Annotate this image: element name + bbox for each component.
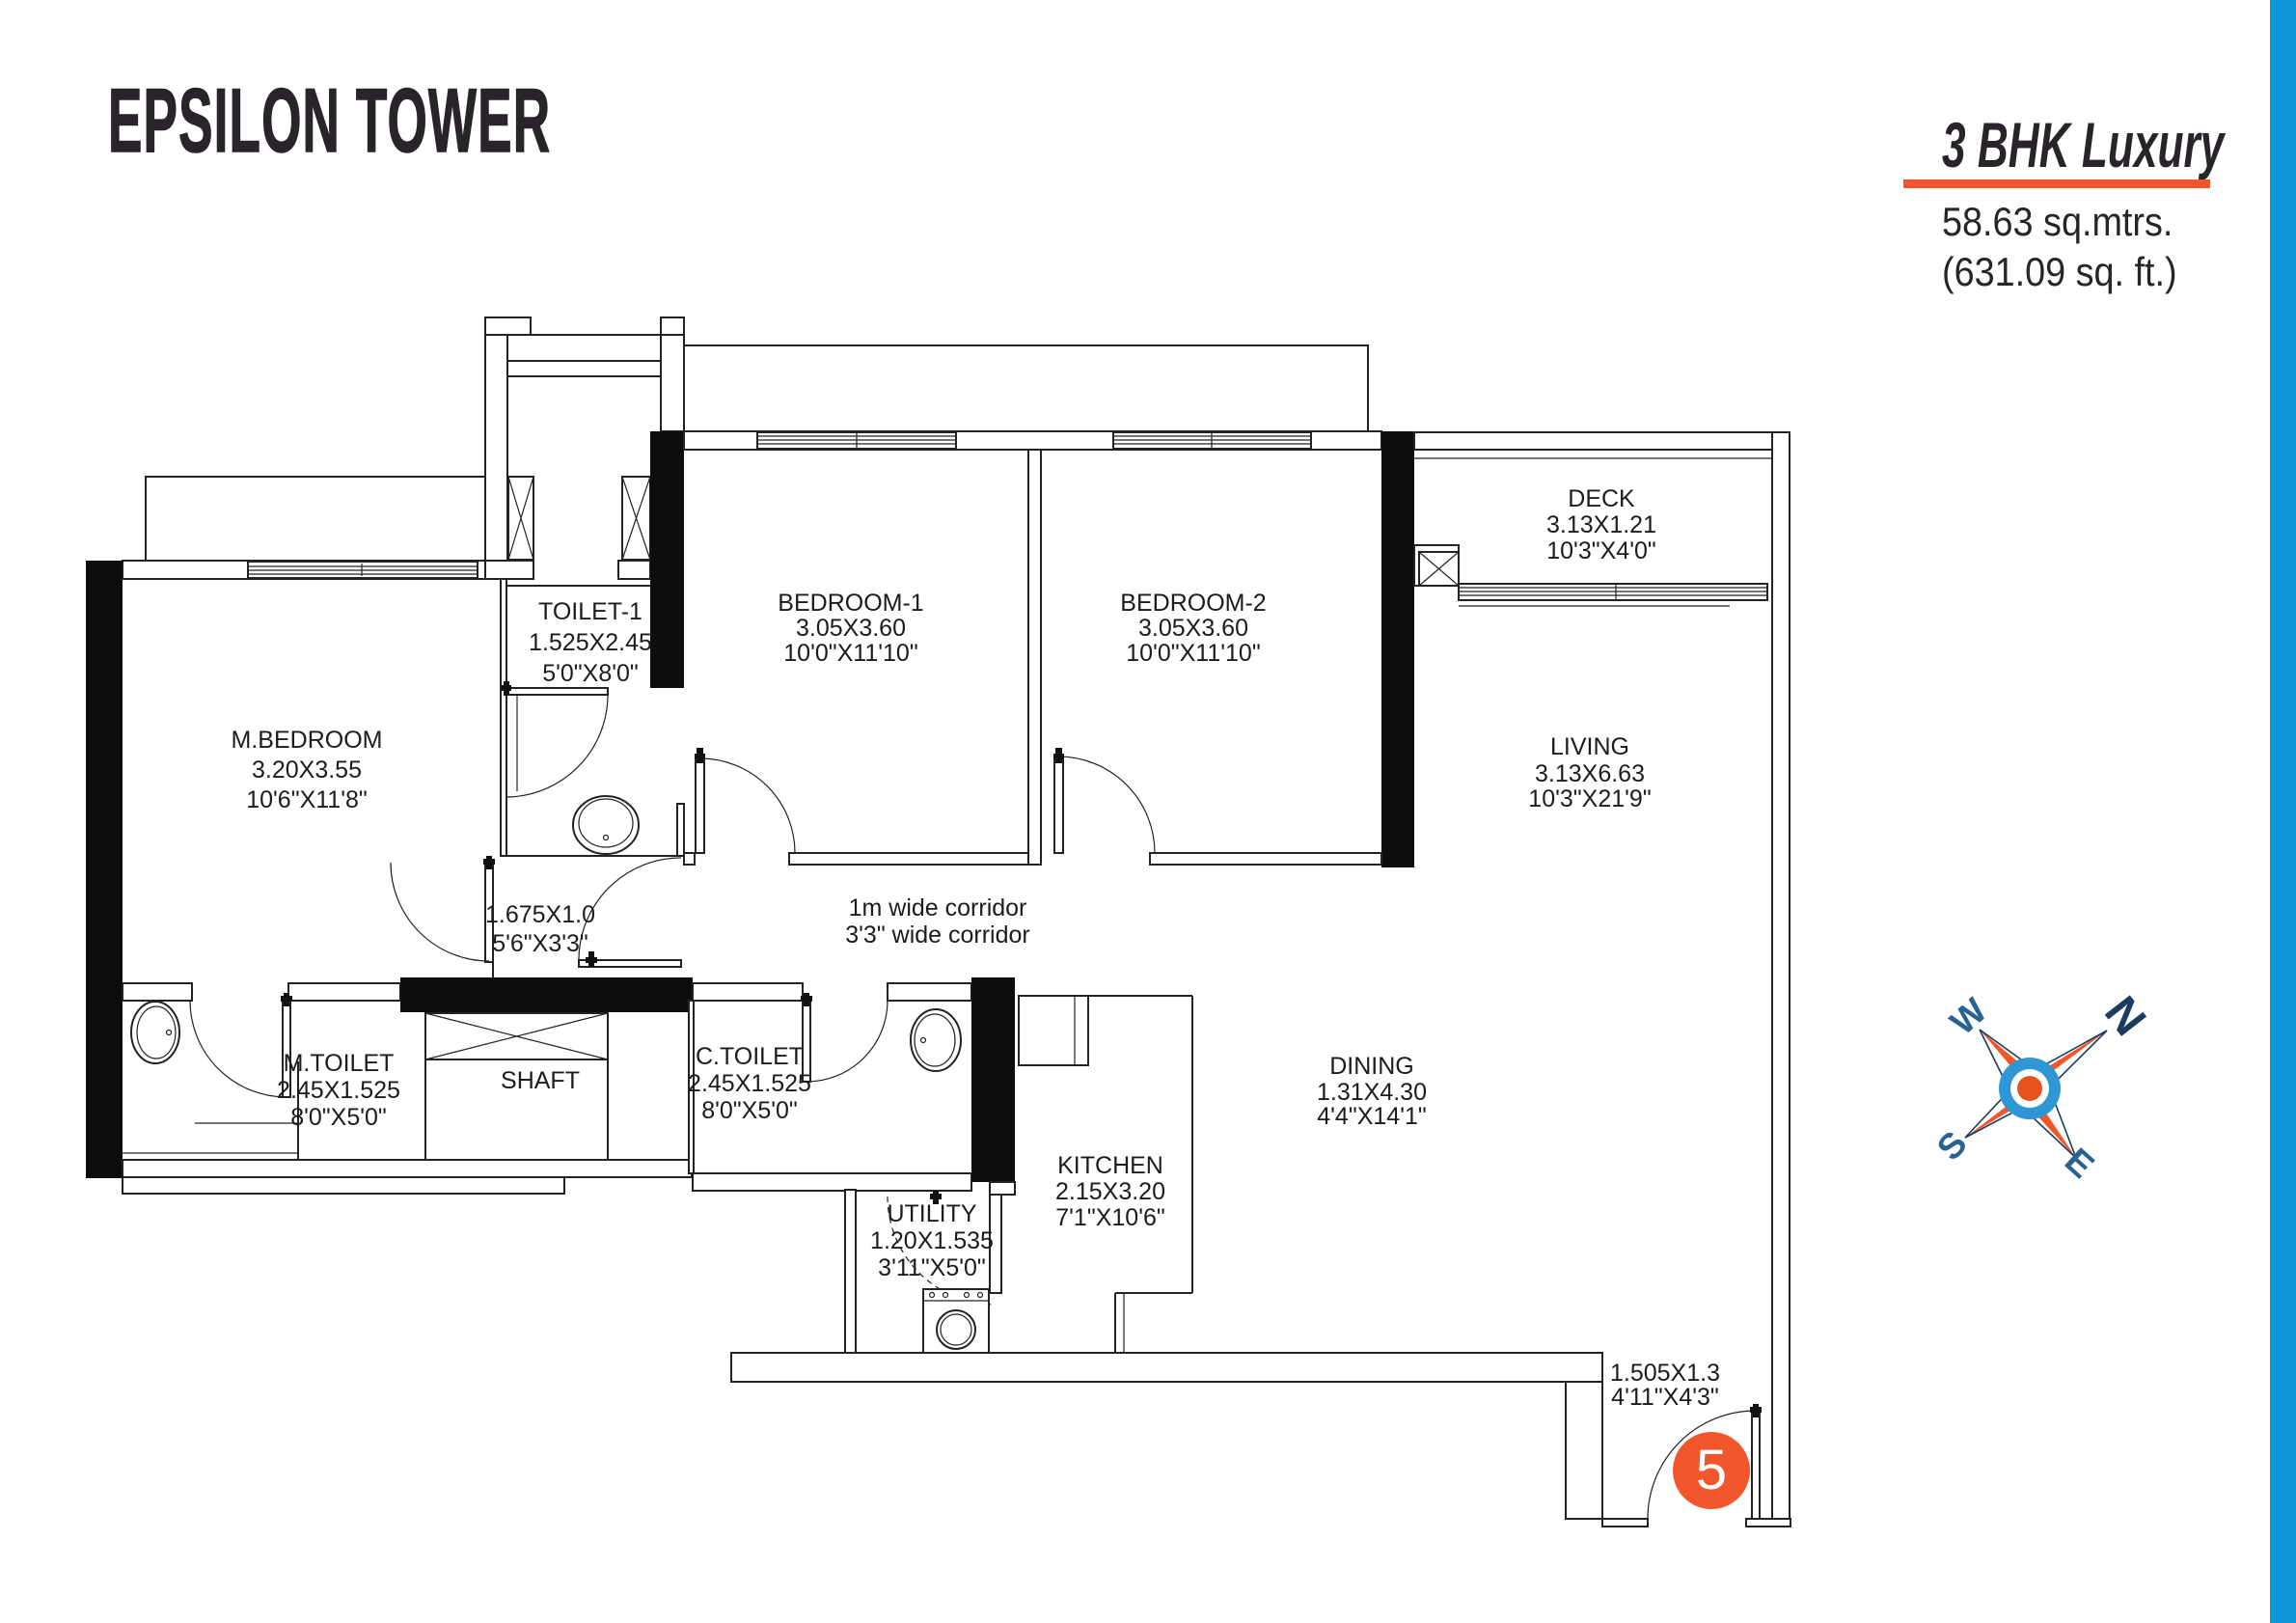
svg-text:10'6"X11'8": 10'6"X11'8"	[246, 786, 368, 813]
svg-text:1.20X1.535: 1.20X1.535	[870, 1227, 994, 1254]
svg-text:EPSILON TOWER: EPSILON TOWER	[108, 70, 551, 172]
svg-text:1.31X4.30: 1.31X4.30	[1317, 1079, 1427, 1106]
svg-text:3.13X1.21: 3.13X1.21	[1546, 511, 1656, 538]
svg-text:4'4"X14'1": 4'4"X14'1"	[1317, 1103, 1427, 1130]
svg-text:1m wide corridor: 1m wide corridor	[849, 894, 1027, 922]
svg-text:7'1"X10'6": 7'1"X10'6"	[1055, 1204, 1165, 1231]
svg-text:2.15X3.20: 2.15X3.20	[1055, 1178, 1165, 1205]
svg-text:3.05X3.60: 3.05X3.60	[1138, 615, 1248, 642]
svg-text:2.45X1.525: 2.45X1.525	[277, 1077, 400, 1104]
svg-text:C.TOILET: C.TOILET	[696, 1043, 804, 1070]
svg-text:3.13X6.63: 3.13X6.63	[1535, 760, 1645, 787]
svg-text:4'11"X4'3": 4'11"X4'3"	[1611, 1384, 1719, 1411]
svg-text:LIVING: LIVING	[1550, 733, 1629, 760]
svg-text:3'3" wide corridor: 3'3" wide corridor	[845, 922, 1030, 949]
svg-text:5'0"X8'0": 5'0"X8'0"	[542, 660, 639, 687]
svg-text:DINING: DINING	[1329, 1053, 1414, 1080]
svg-text:10'0"X11'10": 10'0"X11'10"	[783, 640, 917, 667]
svg-text:UTILITY: UTILITY	[887, 1200, 976, 1227]
svg-text:DECK: DECK	[1568, 485, 1635, 512]
svg-text:10'3"X4'0": 10'3"X4'0"	[1546, 537, 1656, 564]
svg-text:M.BEDROOM: M.BEDROOM	[232, 727, 383, 754]
svg-text:8'0"X5'0": 8'0"X5'0"	[701, 1097, 798, 1124]
svg-text:10'0"X11'10": 10'0"X11'10"	[1126, 640, 1260, 667]
svg-text:1.505X1.3: 1.505X1.3	[1610, 1360, 1720, 1387]
svg-text:5'6"X3'3": 5'6"X3'3"	[492, 930, 588, 957]
svg-text:BEDROOM-2: BEDROOM-2	[1120, 590, 1266, 617]
svg-text:3.05X3.60: 3.05X3.60	[796, 615, 906, 642]
svg-text:58.63 sq.mtrs.: 58.63 sq.mtrs.	[1942, 200, 2173, 244]
svg-text:M.TOILET: M.TOILET	[284, 1050, 395, 1077]
svg-text:5: 5	[1696, 1439, 1727, 1501]
svg-text:KITCHEN: KITCHEN	[1057, 1152, 1163, 1179]
svg-text:(631.09 sq. ft.): (631.09 sq. ft.)	[1942, 250, 2177, 294]
svg-text:SHAFT: SHAFT	[501, 1067, 580, 1094]
svg-text:TOILET-1: TOILET-1	[538, 598, 642, 625]
svg-text:BEDROOM-1: BEDROOM-1	[778, 590, 923, 617]
svg-text:10'3"X21'9": 10'3"X21'9"	[1528, 785, 1651, 812]
svg-text:1.675X1.0: 1.675X1.0	[485, 901, 595, 928]
svg-text:8'0"X5'0": 8'0"X5'0"	[290, 1104, 387, 1131]
svg-text:3 BHK Luxury: 3 BHK Luxury	[1942, 109, 2226, 180]
svg-text:2.45X1.525: 2.45X1.525	[688, 1070, 811, 1097]
svg-text:3.20X3.55: 3.20X3.55	[252, 756, 362, 784]
svg-text:3'11"X5'0": 3'11"X5'0"	[878, 1254, 986, 1281]
svg-text:1.525X2.45: 1.525X2.45	[529, 629, 652, 656]
